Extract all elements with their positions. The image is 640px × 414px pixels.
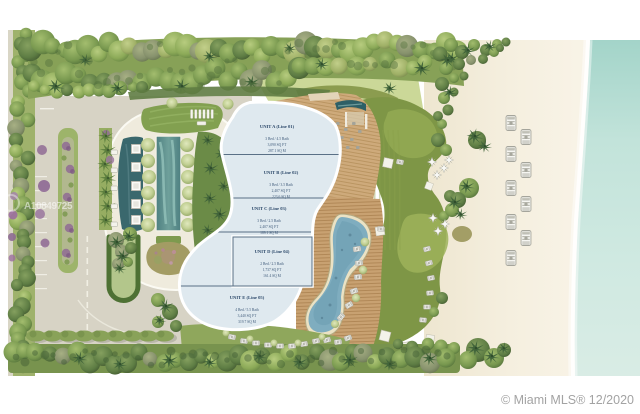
svg-text:223.6 SQ M: 223.6 SQ M <box>272 195 290 199</box>
svg-text:3 Bed / 2.5 Bath: 3 Bed / 2.5 Bath <box>257 219 281 223</box>
svg-text:UNIT E (Line 05): UNIT E (Line 05) <box>230 295 265 300</box>
svg-text:3 Bed / 3.5 Bath: 3 Bed / 3.5 Bath <box>269 183 293 187</box>
svg-text:3 Bed / 4.5 Bath: 3 Bed / 4.5 Bath <box>265 137 289 141</box>
svg-text:UNIT D (Line 04): UNIT D (Line 04) <box>255 249 290 254</box>
svg-text:189.1 SQ M: 189.1 SQ M <box>260 231 278 235</box>
svg-text:2 Bed / 2.5 Bath: 2 Bed / 2.5 Bath <box>260 262 284 266</box>
svg-text:UNIT C (Line 03): UNIT C (Line 03) <box>252 206 287 211</box>
svg-text:UNIT A (Line 01): UNIT A (Line 01) <box>260 124 295 129</box>
svg-text:319.7 SQ M: 319.7 SQ M <box>238 320 256 324</box>
svg-text:© Miami MLS® 12/2020: © Miami MLS® 12/2020 <box>501 393 634 407</box>
svg-text:A10849725: A10849725 <box>24 201 73 212</box>
svg-text:4 Bed / 5.5 Bath: 4 Bed / 5.5 Bath <box>235 308 259 312</box>
svg-text:UNIT B (Line 02): UNIT B (Line 02) <box>264 170 299 175</box>
svg-text:161.4 SQ M: 161.4 SQ M <box>263 274 281 278</box>
svg-text:287.1 SQ M: 287.1 SQ M <box>268 149 286 153</box>
